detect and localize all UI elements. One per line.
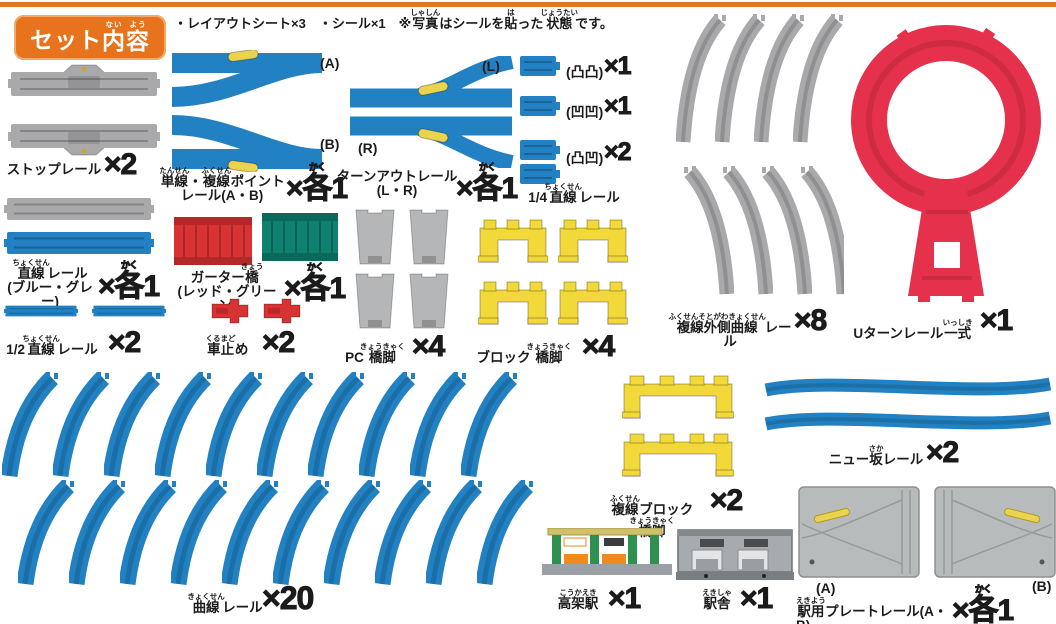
plate-rail-label: 駅用えきようプレートレール(A・B) — [796, 596, 954, 624]
station-house-label: 駅舎えきしゃ — [698, 588, 736, 611]
elevated-station-graphic — [542, 528, 672, 576]
turnout-rail-count: ×各かく1 — [456, 162, 517, 207]
quarter-rail-count-2: ×1 — [604, 92, 631, 121]
u-turn-rail-label: Uターンレール一式いっしき — [850, 318, 976, 341]
station-house-graphic — [676, 528, 794, 582]
curve-rail-count: ×20 — [262, 580, 313, 617]
curve-rail-graphic — [2, 372, 556, 594]
outer-curve-rail-count: ×8 — [794, 304, 826, 338]
elevated-station-label: 高架駅こうかえき — [552, 588, 604, 611]
slope-rail-graphic — [762, 372, 1054, 434]
buffer-stop-graphic — [206, 294, 310, 328]
block-pier-count: ×4 — [582, 330, 614, 364]
quarter-rail-count-3: ×2 — [604, 138, 631, 167]
quarter-rail-tag-3: (凸凹) — [566, 148, 603, 168]
stop-rail-graphic — [8, 64, 160, 156]
point-rail-tag-b: (B) — [320, 136, 339, 152]
pc-pier-count: ×4 — [412, 330, 444, 364]
turnout-rail-tag-l: (L) — [482, 58, 500, 74]
quarter-rail-count-1: ×1 — [604, 52, 631, 81]
set-contents-badge: セット内ない容よう — [14, 15, 166, 60]
buffer-stop-count: ×2 — [262, 326, 294, 360]
outer-curve-rail-label: 複線外側曲線ふくせんそとがわきょくせんレール — [668, 312, 792, 349]
point-rail-tag-a: (A) — [320, 55, 339, 71]
half-rail-count: ×2 — [108, 326, 140, 360]
u-turn-rail-count: ×1 — [980, 304, 1012, 338]
double-block-pier-graphic — [622, 370, 734, 482]
quarter-rail-graphic — [518, 54, 560, 188]
set-contents-sheet: セット内ない容よう ・レイアウトシート×3 ・シール×1 ※写真しゃしんはシール… — [0, 0, 1056, 624]
station-house-count: ×1 — [740, 582, 772, 616]
top-border-line — [0, 2, 1056, 7]
elevated-station-count: ×1 — [608, 582, 640, 616]
slope-rail-label: ニュー坂さかレール — [828, 444, 924, 467]
curve-rail-label: 曲線きょくせんレール — [186, 592, 264, 615]
girder-bridge-graphic — [172, 210, 338, 268]
quarter-rail-tag-2: (凹凹) — [566, 102, 603, 122]
slope-rail-count: ×2 — [926, 436, 958, 470]
buffer-stop-label: 車止くるまどめ — [196, 334, 258, 357]
contents-note: ・レイアウトシート×3 ・シール×1 ※写真しゃしんはシールを貼はった状態じょう… — [174, 8, 613, 32]
turnout-rail-label: ターンアウトレール(L・R) — [336, 170, 458, 198]
quarter-rail-label: 1/4直線ちょくせんレール — [514, 182, 634, 205]
point-rail-label: 単線たんせん・複線ふくせんポイントレール(A・B) — [158, 166, 286, 203]
plate-rail-count: ×各かく1 — [952, 584, 1013, 624]
pc-pier-graphic — [350, 204, 454, 332]
u-turn-rail-graphic — [842, 16, 1050, 304]
plate-rail-tag-b: (B) — [1032, 578, 1051, 594]
pc-pier-label: PC橋脚きょうきゃく — [340, 342, 410, 365]
outer-curve-rail-graphic — [676, 14, 844, 302]
double-block-pier-count: ×2 — [710, 484, 742, 518]
block-pier-label: ブロック橋脚きょうきゃく — [470, 342, 578, 365]
plate-rail-tag-a: (A) — [816, 580, 835, 596]
block-pier-graphic — [478, 212, 630, 332]
straight-rail-graphic — [4, 196, 156, 256]
half-rail-label: 1/2直線ちょくせんレール — [2, 334, 102, 357]
stop-rail-label: ストップレール — [6, 163, 102, 177]
quarter-rail-tag-1: (凸凸) — [566, 62, 603, 82]
plate-rail-graphic — [798, 486, 1056, 578]
stop-rail-count: ×2 — [104, 148, 136, 182]
point-rail-graphic — [168, 50, 326, 172]
half-rail-graphic — [4, 298, 166, 328]
turnout-rail-tag-r: (R) — [358, 140, 377, 156]
